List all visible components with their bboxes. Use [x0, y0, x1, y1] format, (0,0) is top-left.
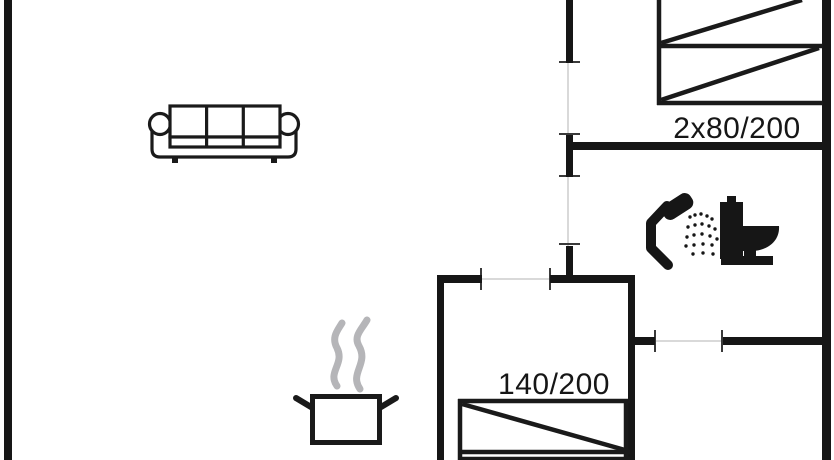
spray-drops [684, 212, 718, 255]
double-bed-icon [657, 0, 823, 105]
toilet-icon [720, 196, 779, 265]
sofa-icon [150, 106, 299, 163]
floorplan-canvas: 2x80/200 140/200 [0, 0, 834, 460]
floorplan-svg: 2x80/200 140/200 [0, 0, 834, 460]
walls [4, 0, 831, 460]
steam-wisps [334, 320, 367, 389]
shower-icon [651, 190, 719, 265]
steam-pot-icon [296, 320, 396, 443]
small-double-bed-icon [458, 399, 630, 460]
double-bed-size-label: 2x80/200 [673, 112, 800, 145]
small-double-bed-size-label: 140/200 [498, 368, 610, 401]
